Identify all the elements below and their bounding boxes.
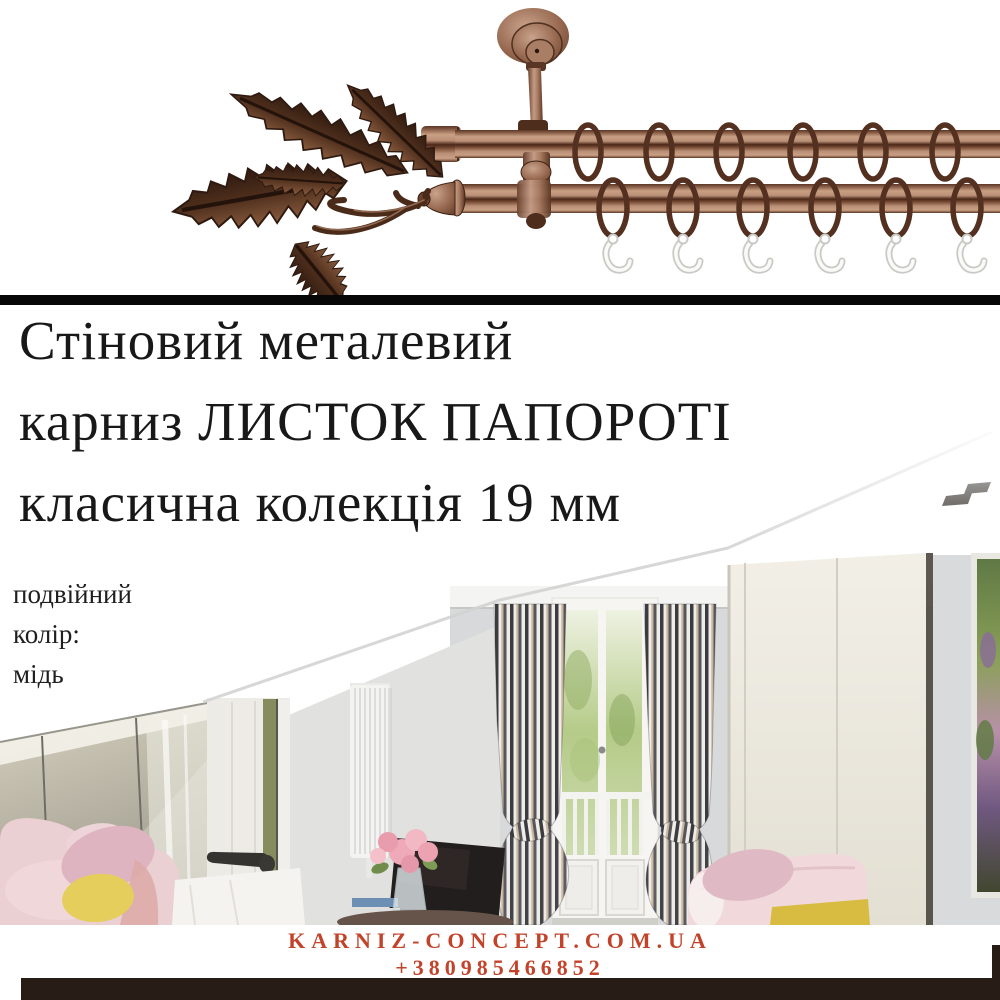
headline-line-3: класична колекція 19 мм xyxy=(19,462,732,543)
spec-line-color-value: мідь xyxy=(13,654,132,694)
website-url[interactable]: KARNIZ-CONCEPT.COM.UA xyxy=(0,928,1000,954)
spec-line-color-label: колір: xyxy=(13,614,132,654)
books xyxy=(352,898,398,907)
spec-line-type: подвійний xyxy=(13,574,132,614)
leaf-finial xyxy=(168,71,465,295)
wall-bracket xyxy=(497,8,569,137)
window-handle xyxy=(599,747,606,754)
lower-rod xyxy=(452,180,1000,229)
headline: Стіновий металевий карниз ЛИСТОК ПАПОРОТ… xyxy=(19,300,732,543)
artwork xyxy=(971,553,1000,898)
product-photo xyxy=(0,0,1000,295)
fern-leaflet-large xyxy=(168,152,352,240)
spec-text: подвійний колір: мідь xyxy=(13,574,132,694)
bottom-bar-right-notch xyxy=(992,945,1000,1000)
footer-band: KARNIZ-CONCEPT.COM.UA +380985466852 xyxy=(0,925,1000,978)
curtain-rod-illustration xyxy=(0,0,1000,295)
headline-line-1: Стіновий металевий xyxy=(19,300,732,381)
promo-banner: Стіновий металевий карниз ЛИСТОК ПАПОРОТ… xyxy=(0,0,1000,1000)
headline-line-2: карниз ЛИСТОК ПАПОРОТІ xyxy=(19,381,732,462)
bottom-bar xyxy=(21,978,1000,1000)
curtain-hooks xyxy=(606,235,984,271)
fern-leaflet-lower-mid xyxy=(277,229,361,295)
vase xyxy=(393,868,426,910)
upper-rod xyxy=(421,126,1000,162)
